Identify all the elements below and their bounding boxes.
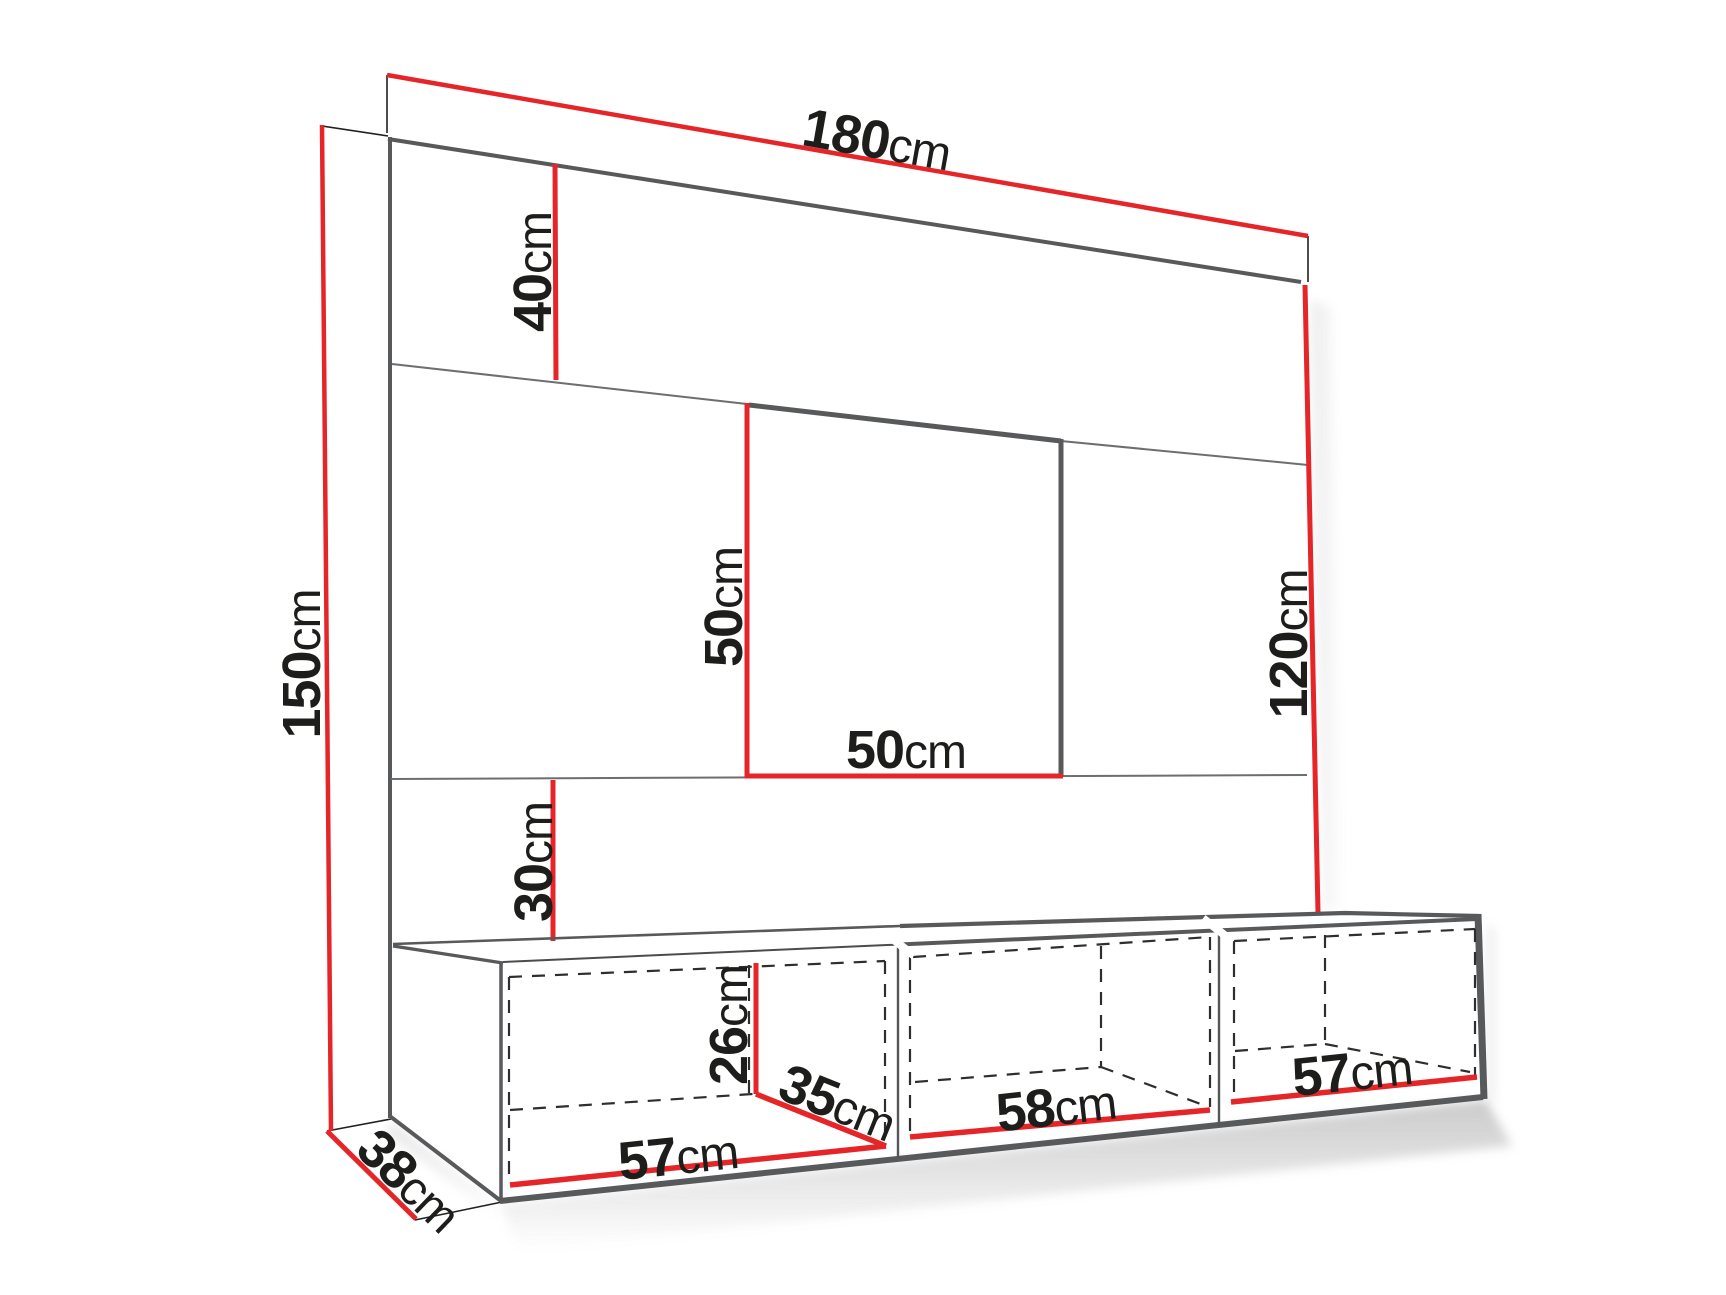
- svg-text:30cm: 30cm: [504, 802, 564, 922]
- svg-text:50cm: 50cm: [694, 547, 754, 667]
- svg-text:50cm: 50cm: [846, 720, 966, 780]
- svg-text:40cm: 40cm: [503, 212, 563, 332]
- svg-text:26cm: 26cm: [699, 965, 759, 1085]
- svg-text:120cm: 120cm: [1259, 569, 1319, 718]
- svg-text:150cm: 150cm: [272, 589, 332, 738]
